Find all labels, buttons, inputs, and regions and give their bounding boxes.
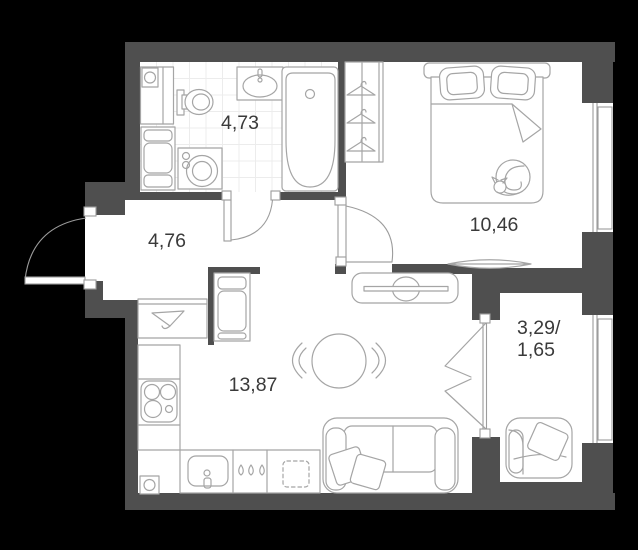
balcony-area-label-line2: 1,65 <box>517 339 555 361</box>
sofa-armrest <box>435 428 455 490</box>
pillow <box>490 66 536 101</box>
table-top <box>312 334 366 388</box>
hallway-coat-rack <box>138 299 207 338</box>
entrance-door-swing-arc <box>25 218 86 280</box>
floor-plan-canvas: 4,73 4,76 10,46 13,87 3,29/ 1,65 <box>0 0 638 550</box>
kitchen-counter-bottom <box>180 450 320 493</box>
armchair <box>506 418 572 478</box>
bathtub <box>282 67 338 191</box>
bathroom-door-leaf <box>224 200 231 241</box>
bathroom-sink <box>237 67 283 100</box>
bathroom-area-label: 4,73 <box>221 112 259 134</box>
pillow <box>439 66 485 101</box>
living-kitchen-area-label: 13,87 <box>229 374 278 396</box>
wardrobe <box>345 62 383 162</box>
washing-machine <box>178 148 222 189</box>
toilet <box>177 90 213 116</box>
stove <box>141 381 177 422</box>
floor-drain <box>140 476 159 494</box>
entrance-door <box>25 207 103 289</box>
boiler-cabinet <box>141 67 174 124</box>
kitchen-sink <box>188 456 228 488</box>
bedroom-area-label: 10,46 <box>470 214 519 236</box>
bed <box>424 63 550 203</box>
entrance-door-leaf <box>25 277 85 284</box>
balcony-area-label-line1: 3,29/ <box>517 317 561 339</box>
hallway-area-label: 4,76 <box>148 230 186 252</box>
sofa <box>323 418 458 493</box>
tv-screen <box>364 287 448 292</box>
tv-stand <box>352 273 458 303</box>
floor-plan: 4,73 4,76 10,46 13,87 3,29/ 1,65 <box>0 0 638 550</box>
hallway-cabinet <box>214 273 250 341</box>
bedroom-door-leaf <box>338 203 346 262</box>
bathroom-cabinet <box>141 127 175 190</box>
bedroom-window <box>582 103 613 232</box>
balcony-window <box>582 315 613 443</box>
kitchen-counter-left <box>138 345 180 450</box>
